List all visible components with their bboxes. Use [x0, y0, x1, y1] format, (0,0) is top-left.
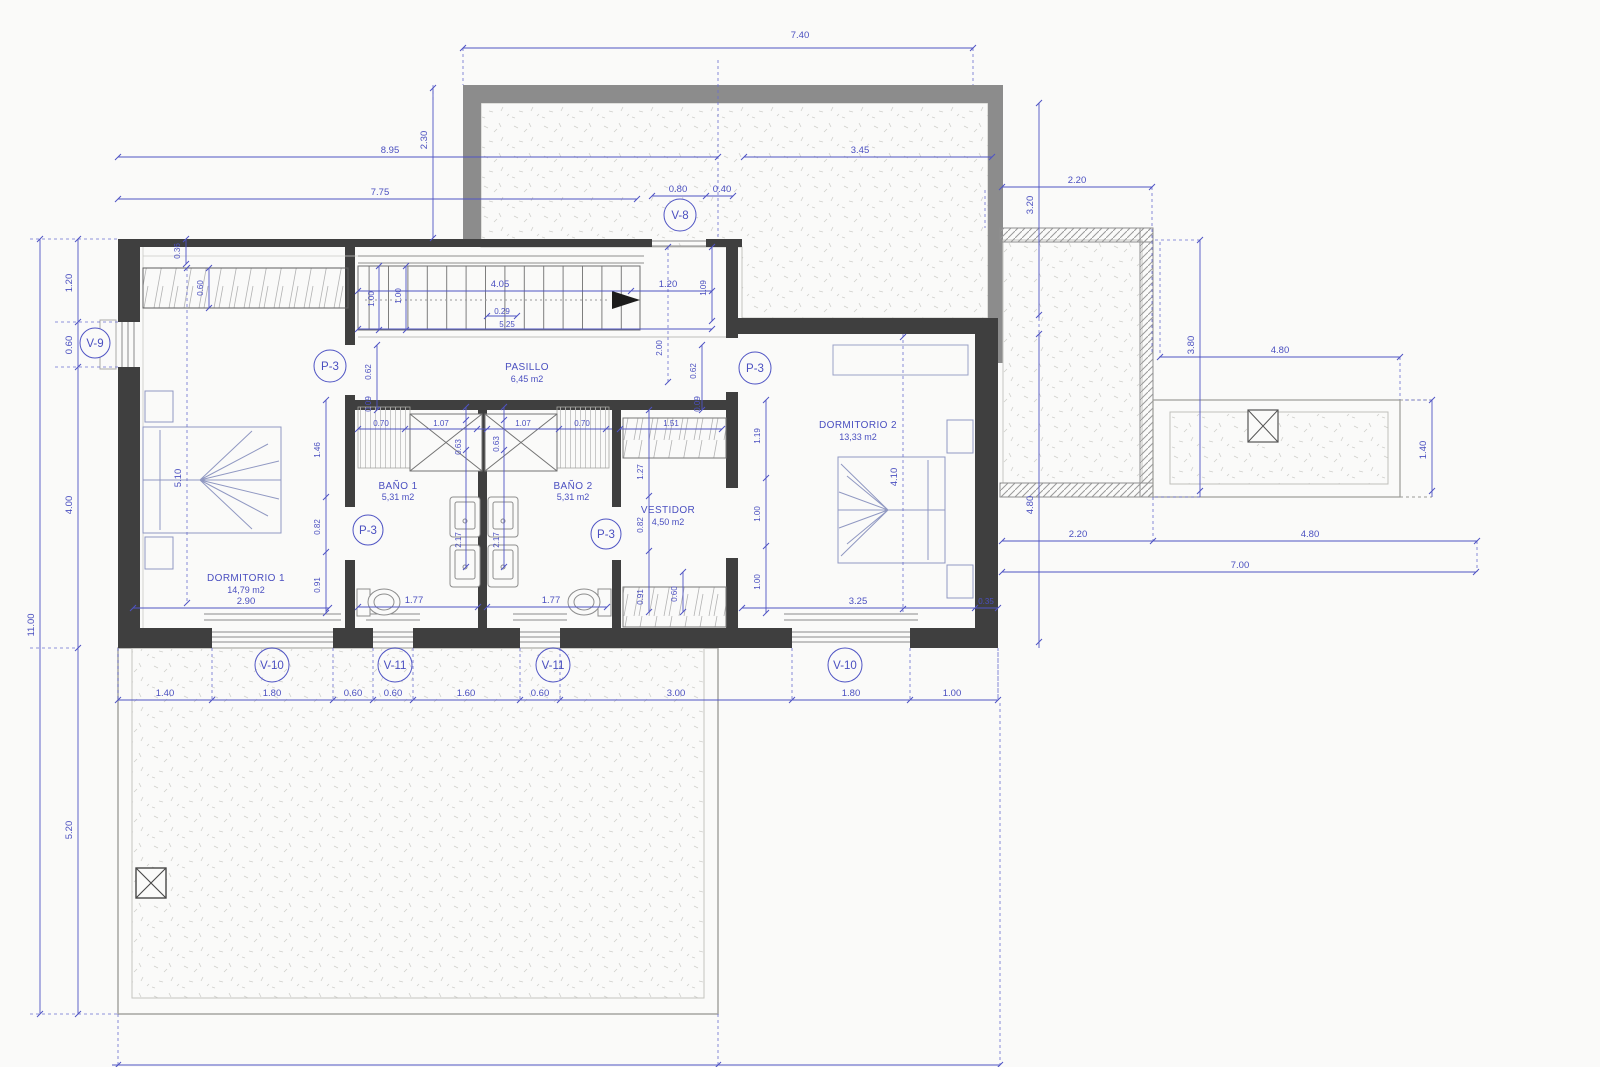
dim-label: 1.00: [943, 688, 962, 699]
window-v11-mid: [513, 614, 567, 642]
dim-label: 4.05: [491, 279, 510, 290]
dim-label: 1.77: [405, 595, 424, 606]
svg-text:P-3: P-3: [597, 529, 615, 541]
dim-label: 11.00: [26, 613, 37, 636]
room-area-bano2: 5,31 m2: [557, 492, 590, 502]
dim-label: 1.27: [636, 464, 645, 480]
dim-label: 0.60: [64, 336, 75, 355]
window-v11-left: [366, 614, 420, 642]
dim-label: 1.20: [64, 274, 75, 293]
dim-label: 0.63: [454, 439, 463, 455]
dresser-dorm2: [833, 345, 968, 375]
dim-label: 0.62: [364, 364, 373, 380]
lower-terrace: [118, 648, 718, 1014]
planter-strip: [1153, 400, 1432, 497]
drain-marker-icon: [1248, 410, 1278, 442]
dim-label: 0.60: [344, 688, 363, 699]
dim-label: 1.20: [659, 279, 678, 290]
bath1-fixtures: [357, 407, 482, 616]
dim-label: 4.80: [1025, 496, 1036, 515]
side-terrace-hatched: [1000, 228, 1153, 497]
dim-label: 4.10: [889, 468, 900, 487]
svg-text:P-3: P-3: [321, 361, 339, 373]
room-name-bano2: BAÑO 2: [553, 479, 592, 492]
dim-label: 4.00: [64, 496, 75, 515]
dim-label: 7.40: [791, 30, 810, 41]
nightstand: [145, 537, 173, 569]
dim-label: 5.20: [64, 821, 75, 840]
dim-label: 2.30: [419, 131, 430, 150]
dim-label: 0.63: [492, 436, 501, 452]
room-name-dormitorio2: DORMITORIO 2: [819, 420, 897, 431]
dim-label: 1.80: [842, 688, 861, 699]
room-area-vestidor: 4,50 m2: [652, 517, 685, 527]
dim-label: 0.09: [364, 396, 373, 412]
dim-label: 4.80: [1271, 345, 1290, 356]
dim-label: 1.40: [1418, 441, 1429, 460]
dim-label: 0.82: [636, 517, 645, 533]
svg-text:P-3: P-3: [359, 525, 377, 537]
dim-label: 1.07: [433, 419, 449, 428]
tag-v8: V-8: [664, 199, 696, 231]
dim-label: 0.82: [313, 519, 322, 535]
dim-label: 0.40: [713, 184, 732, 195]
dim-label: 2.17: [454, 532, 463, 548]
room-name-dormitorio1: DORMITORIO 1: [207, 573, 285, 584]
dim-label: 5.25: [499, 320, 515, 329]
dim-label: 0.70: [574, 419, 590, 428]
nightstand: [947, 565, 973, 598]
dim-label: 3.00: [667, 688, 686, 699]
dim-label: 1.07: [515, 419, 531, 428]
dim-label: 1.77: [542, 595, 561, 606]
tag-p3-bano1: P-3: [353, 515, 383, 545]
dim-label: 1.51: [663, 419, 679, 428]
svg-text:V-11: V-11: [542, 660, 565, 672]
drain-marker-icon: [136, 868, 166, 898]
room-name-vestidor: VESTIDOR: [641, 505, 695, 516]
dim-label: 3.45: [851, 145, 870, 156]
room-area-dormitorio1: 14,79 m2: [227, 585, 265, 595]
dim-label: 0.70: [373, 419, 389, 428]
dim-label: 7.00: [1231, 560, 1250, 571]
shower-tray: [358, 407, 410, 468]
toilet: [357, 589, 400, 616]
dim-label: 0.60: [670, 586, 679, 602]
svg-text:V-11: V-11: [384, 660, 407, 672]
dim-label: 1.09: [699, 280, 708, 296]
dim-label: 3.25: [849, 596, 868, 607]
dim-label: 1.00: [367, 291, 376, 307]
dim-label: 0.29: [494, 307, 510, 316]
nightstand: [947, 420, 973, 453]
window-v10-right: [784, 614, 918, 642]
bed-dorm2: [838, 420, 973, 598]
svg-text:P-3: P-3: [746, 363, 764, 375]
room-name-bano1: BAÑO 1: [378, 479, 417, 492]
toilet: [568, 589, 611, 616]
dim-label: 1.19: [753, 428, 762, 444]
dim-label: 1.80: [263, 688, 282, 699]
dim-label: 2.00: [655, 340, 664, 356]
svg-text:V-10: V-10: [260, 660, 284, 672]
dim-label: 0.62: [689, 363, 698, 379]
dim-label: 1.46: [313, 442, 322, 458]
tag-p3-bano2: P-3: [591, 519, 621, 549]
dim-label: 8.95: [381, 145, 400, 156]
floor-plan-canvas: 7.40 8.95 3.45 7.75 0.80 0.40 2.20 2.30 …: [0, 0, 1600, 1067]
dim-label: 7.75: [371, 187, 390, 198]
dim-label: 1.00: [753, 506, 762, 522]
dim-label: 5.10: [173, 469, 184, 488]
tag-p3-dorm1: P-3: [314, 350, 346, 382]
dim-label: 1.00: [394, 288, 403, 304]
room-area-bano1: 5,31 m2: [382, 492, 415, 502]
terrace-parapet-left: [463, 85, 481, 243]
dim-label: 0.09: [693, 396, 702, 412]
staircase: [358, 256, 726, 337]
dim-label: 0.35: [978, 597, 994, 606]
window-v10-left: [204, 614, 341, 642]
dim-label: 0.60: [531, 688, 550, 699]
dim-label: 2.17: [492, 532, 501, 548]
svg-text:V-9: V-9: [86, 338, 103, 350]
tag-v10-right: V-10: [828, 648, 862, 682]
dim-label: 0.36: [173, 243, 182, 259]
room-area-pasillo: 6,45 m2: [511, 374, 544, 384]
shower-tray: [557, 407, 609, 468]
dim-label: 0.91: [313, 577, 322, 593]
dim-label: 0.80: [669, 184, 688, 195]
svg-text:V-8: V-8: [671, 210, 688, 222]
terrace-parapet-top: [463, 85, 1003, 103]
dim-label: 0.91: [636, 589, 645, 605]
tag-p3-dorm2: P-3: [739, 352, 771, 384]
room-name-pasillo: PASILLO: [505, 362, 549, 373]
wardrobe-dorm1: [143, 268, 348, 308]
dim-label: 1.00: [753, 574, 762, 590]
dim-label: 1.60: [457, 688, 476, 699]
tag-v9: V-9: [80, 328, 110, 358]
dim-label: 2.90: [237, 596, 256, 607]
dim-label: 4.80: [1301, 529, 1320, 540]
dim-label: 2.20: [1069, 529, 1088, 540]
dim-label: 3.20: [1025, 196, 1036, 215]
floor-plan-drawing: 7.40 8.95 3.45 7.75 0.80 0.40 2.20 2.30 …: [0, 0, 1600, 1067]
dim-label: 2.20: [1068, 175, 1087, 186]
nightstand: [145, 391, 173, 422]
room-area-dormitorio2: 13,33 m2: [839, 432, 877, 442]
dim-label: 0.60: [384, 688, 403, 699]
stair-handrail: [358, 256, 644, 263]
dim-label: 1.40: [156, 688, 175, 699]
dim-label: 0.60: [196, 280, 205, 296]
svg-text:V-10: V-10: [833, 660, 857, 672]
bed-dorm1: [143, 391, 281, 569]
dim-label: 3.80: [1186, 336, 1197, 355]
room-labels: DORMITORIO 1 14,79 m2 DORMITORIO 2 13,33…: [207, 362, 897, 595]
